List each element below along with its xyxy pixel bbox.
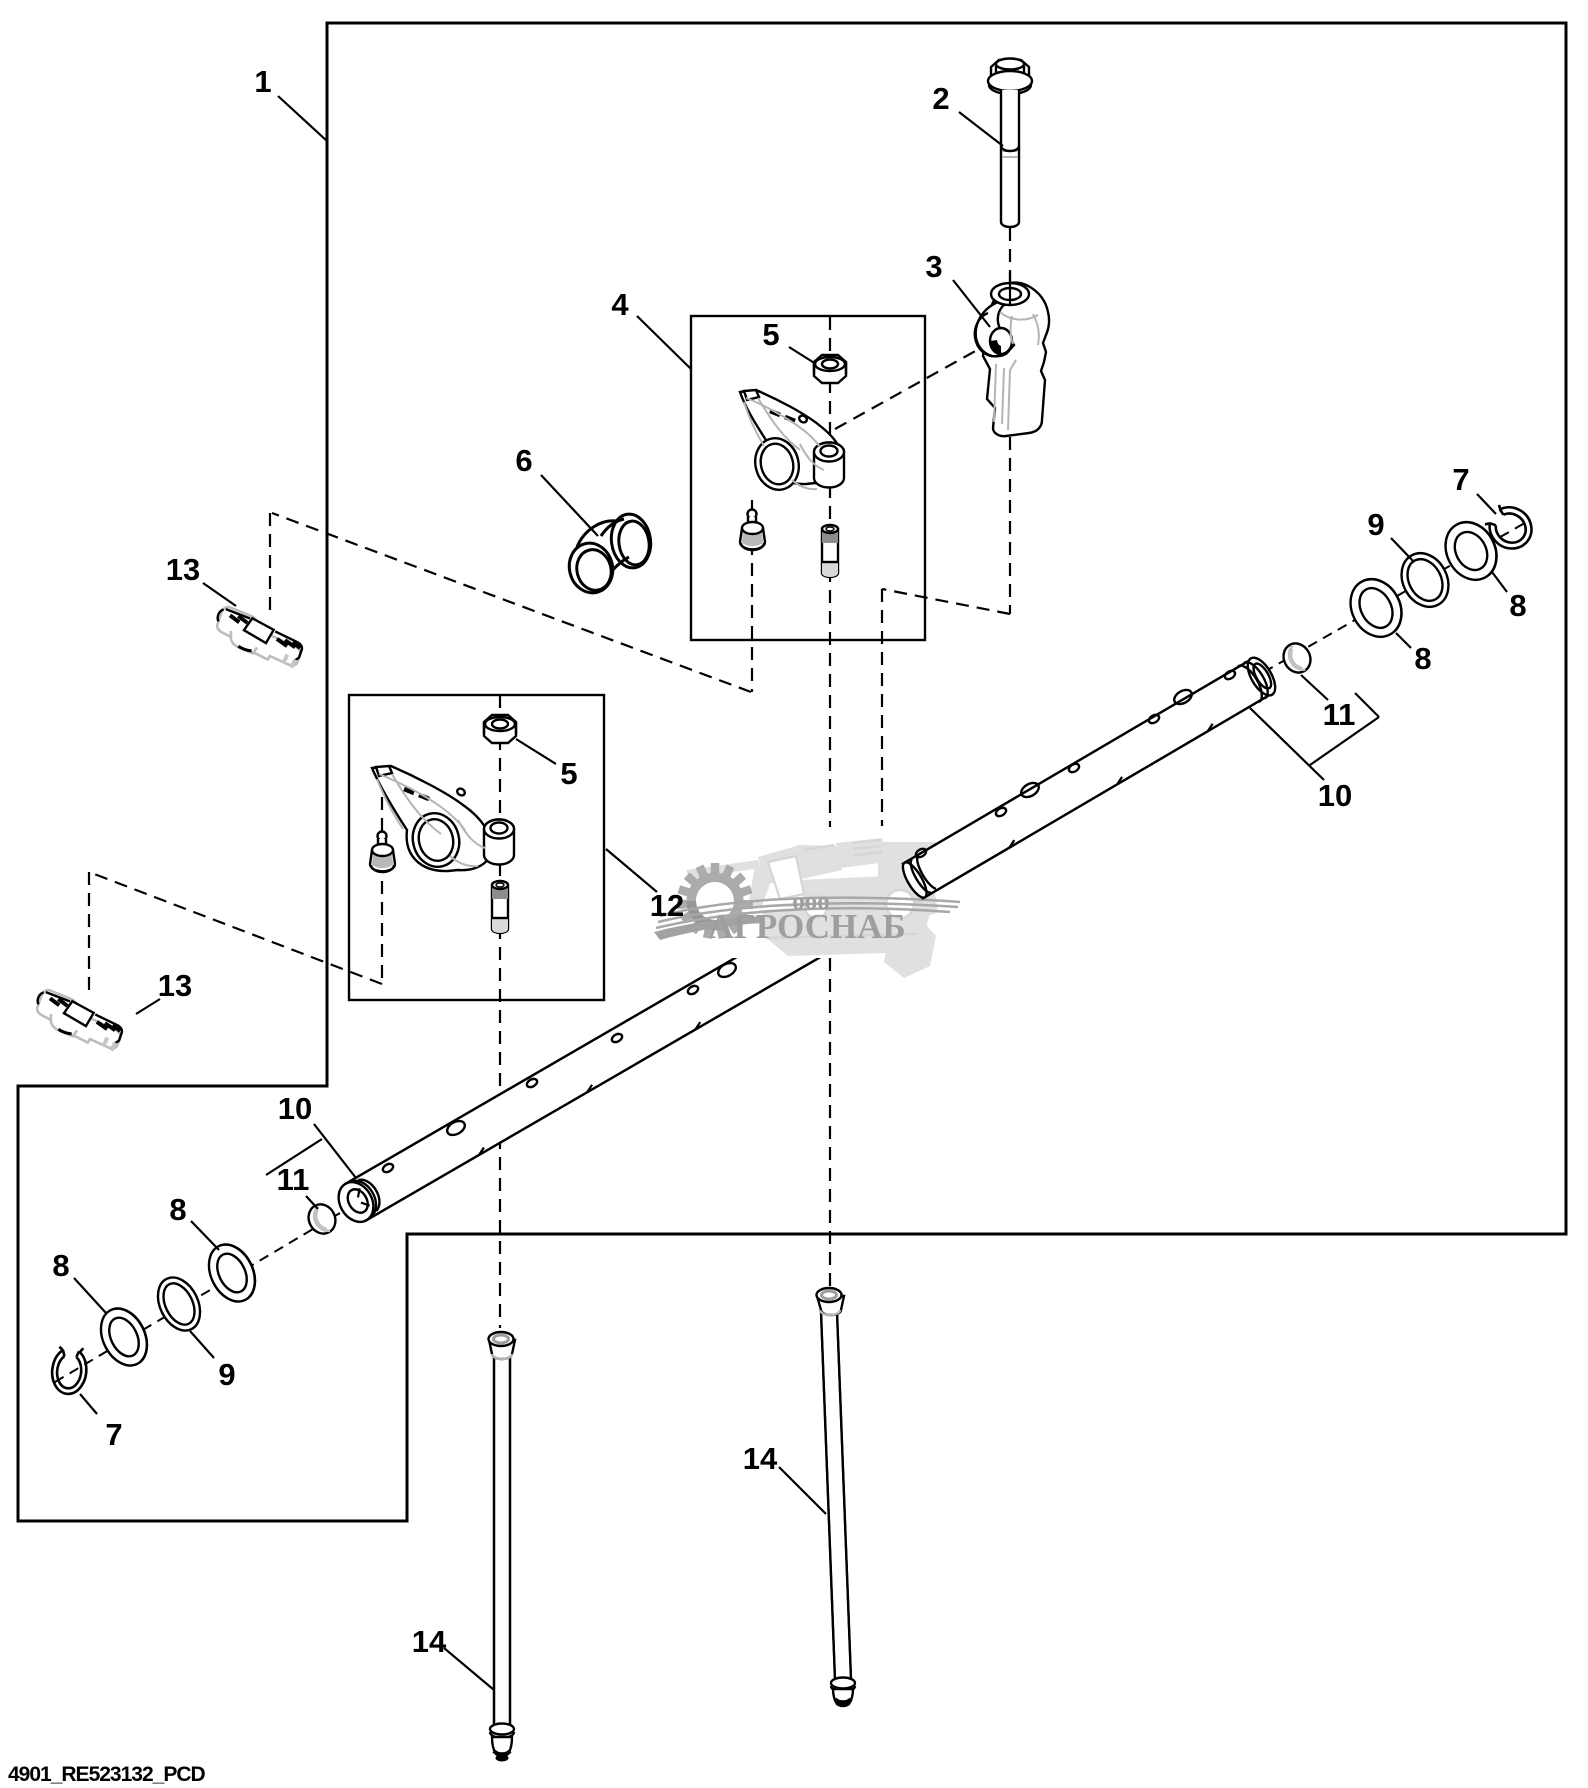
svg-text:13: 13 <box>158 968 192 1003</box>
svg-text:8: 8 <box>1509 588 1526 623</box>
svg-text:7: 7 <box>105 1417 122 1452</box>
svg-text:8: 8 <box>52 1248 69 1283</box>
svg-text:14: 14 <box>412 1624 447 1659</box>
svg-text:14: 14 <box>743 1441 778 1476</box>
svg-text:5: 5 <box>762 317 779 352</box>
svg-text:10: 10 <box>278 1091 312 1126</box>
svg-text:АГРОСНАБ: АГРОСНАБ <box>708 907 905 946</box>
svg-text:13: 13 <box>166 552 200 587</box>
svg-text:12: 12 <box>650 888 684 923</box>
svg-text:10: 10 <box>1318 778 1352 813</box>
svg-text:11: 11 <box>1323 697 1356 732</box>
svg-text:8: 8 <box>1414 641 1431 676</box>
svg-text:1: 1 <box>254 64 271 99</box>
svg-text:8: 8 <box>169 1192 186 1227</box>
svg-text:7: 7 <box>1452 462 1469 497</box>
svg-text:4901_RE523132_PCD: 4901_RE523132_PCD <box>8 1763 205 1786</box>
svg-text:11: 11 <box>277 1162 310 1197</box>
svg-text:4: 4 <box>611 287 629 322</box>
svg-text:6: 6 <box>515 443 532 478</box>
svg-text:9: 9 <box>1367 507 1384 542</box>
svg-text:9: 9 <box>218 1357 235 1392</box>
svg-text:3: 3 <box>925 249 942 284</box>
svg-text:5: 5 <box>560 756 577 791</box>
svg-text:2: 2 <box>932 81 949 116</box>
